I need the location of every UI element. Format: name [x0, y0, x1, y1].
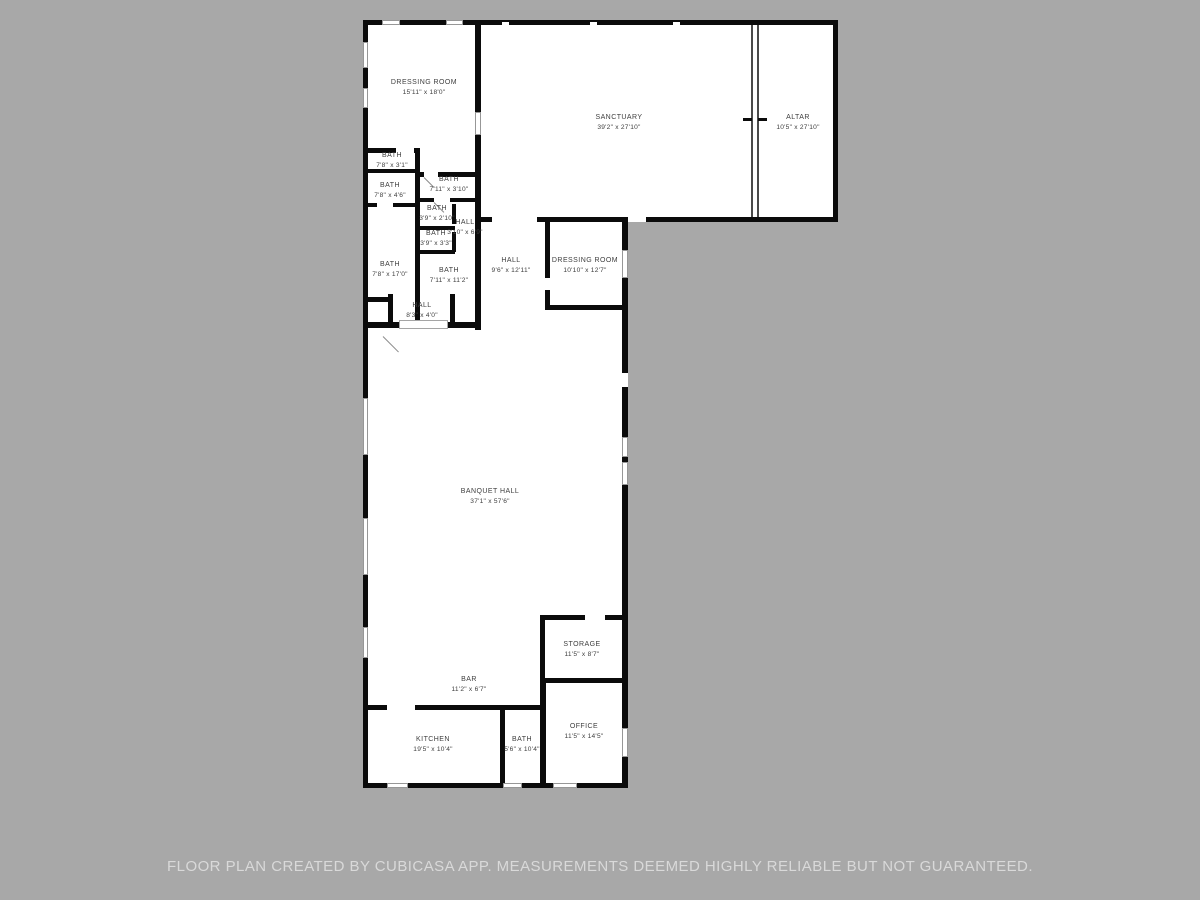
door-mark-sanctuary-1	[502, 22, 509, 25]
footer-attribution-text: FLOOR PLAN CREATED BY CUBICASA APP. MEAS…	[0, 858, 1200, 875]
altar-partition-line-2	[757, 25, 759, 217]
room-label-bath-5: BATH 3'9" x 3'3"	[420, 229, 452, 249]
door-opening-bath2	[377, 203, 393, 207]
wall-bath5-bottom	[420, 250, 455, 254]
room-label-bath-6: BATH 7'8" x 17'0"	[372, 260, 408, 280]
room-name: STORAGE	[563, 640, 600, 650]
room-dimensions: 10'5" x 27'10"	[776, 123, 819, 133]
room-label-bath-2: BATH 7'8" x 4'6"	[374, 181, 406, 201]
room-dimensions: 39'2" x 27'10"	[595, 123, 642, 133]
room-name: HALL	[406, 301, 438, 311]
wall-storage-bottom	[540, 678, 628, 683]
altar-partition-tick-left	[743, 118, 752, 121]
window-left-2	[363, 88, 368, 108]
room-label-bar: BAR 11'2" x 6'7"	[451, 675, 486, 695]
wall-exterior-right-altar	[833, 20, 838, 222]
wall-exterior-right-lower	[622, 217, 628, 788]
room-label-bath-1: BATH 7'8" x 3'1"	[376, 151, 408, 171]
room-name: BATH	[419, 204, 455, 214]
room-name: BATH	[430, 175, 469, 185]
wall-exterior-top	[363, 20, 838, 25]
room-label-hall-3: HALL 9'6" x 12'11"	[492, 256, 531, 276]
room-name: BAR	[451, 675, 486, 685]
window-banquet-right-2	[622, 462, 628, 485]
room-dimensions: 19'5" x 10'4"	[413, 745, 452, 755]
wall-dressing2-top	[537, 217, 628, 222]
wall-bathblock-bottom-left	[363, 322, 400, 328]
wall-storage-top-right	[605, 615, 628, 620]
wall-kitchen-top-right	[415, 705, 540, 710]
floorplan-canvas: DRESSING ROOM 15'11" x 18'0" SANCTUARY 3…	[0, 0, 1200, 900]
door-mark-sanctuary-2	[590, 22, 597, 25]
room-dimensions: 5'6" x 10'4"	[504, 745, 540, 755]
window-left-5	[363, 627, 368, 658]
room-dimensions: 11'5" x 8'7"	[563, 650, 600, 660]
wall-sanctuary-bottom	[646, 217, 838, 222]
wall-storage-left	[540, 615, 545, 683]
door-opening-bath3-bottom	[434, 198, 450, 202]
room-label-office: OFFICE 11'5" x 14'5"	[565, 722, 604, 742]
wall-dressing2-bottom	[545, 305, 628, 310]
room-label-hall-1: HALL 3'10" x 6'9"	[447, 218, 483, 238]
room-dimensions: 9'6" x 12'11"	[492, 266, 531, 276]
room-label-bath-7: BATH 7'11" x 11'2"	[430, 266, 468, 286]
window-bottom-3	[553, 783, 577, 788]
room-name: OFFICE	[565, 722, 604, 732]
room-dimensions: 7'11" x 11'2"	[430, 276, 468, 286]
altar-partition-line-1	[751, 25, 753, 217]
room-dimensions: 15'11" x 18'0"	[391, 88, 457, 98]
room-label-altar: ALTAR 10'5" x 27'10"	[776, 113, 819, 133]
room-name: HALL	[447, 218, 483, 228]
window-bathblock-right	[475, 112, 481, 135]
door-opening-banquet-right	[622, 373, 628, 387]
altar-partition-tick-right	[758, 118, 767, 121]
window-banquet-right-1	[622, 437, 628, 457]
door-mark-sanctuary-3	[673, 22, 680, 25]
window-bottom-2	[503, 783, 522, 788]
window-top-1	[382, 20, 400, 25]
room-name: BATH	[430, 266, 468, 276]
window-office-right	[622, 728, 628, 757]
room-label-kitchen: KITCHEN 19'5" x 10'4"	[413, 735, 452, 755]
room-label-banquet-hall: BANQUET HALL 37'1" x 57'6"	[461, 487, 520, 507]
room-dimensions: 11'2" x 6'7"	[451, 685, 486, 695]
room-name: KITCHEN	[413, 735, 452, 745]
room-name: BATH	[504, 735, 540, 745]
room-label-storage: STORAGE 11'5" x 8'7"	[563, 640, 600, 660]
room-dimensions: 7'8" x 4'6"	[374, 191, 406, 201]
room-name: ALTAR	[776, 113, 819, 123]
room-label-bath-3: BATH 7'11" x 3'10"	[430, 175, 469, 195]
door-bathblock-bottom	[399, 320, 448, 329]
wall-bathblock-bottom-right	[447, 322, 481, 328]
room-dimensions: 3'10" x 6'9"	[447, 228, 483, 238]
room-name: SANCTUARY	[595, 113, 642, 123]
room-label-sanctuary: SANCTUARY 39'2" x 27'10"	[595, 113, 642, 133]
wall-office-left	[540, 683, 546, 788]
room-dimensions: 37'1" x 57'6"	[461, 497, 520, 507]
room-name: DRESSING ROOM	[552, 256, 618, 266]
room-dimensions: 7'8" x 17'0"	[372, 270, 408, 280]
room-dimensions: 3'9" x 3'3"	[420, 239, 452, 249]
room-label-bath-8: BATH 5'6" x 10'4"	[504, 735, 540, 755]
room-name: BATH	[420, 229, 452, 239]
room-dimensions: 7'11" x 3'10"	[430, 185, 469, 195]
room-dimensions: 10'10" x 12'7"	[552, 266, 618, 276]
window-left-4	[363, 518, 368, 575]
room-label-hall-2: HALL 8'3" x 4'0"	[406, 301, 438, 321]
window-left-1	[363, 42, 368, 68]
room-label-dressing-room-2: DRESSING ROOM 10'10" x 12'7"	[552, 256, 618, 276]
window-dressing2-right	[622, 250, 628, 278]
room-dimensions: 8'3" x 4'0"	[406, 311, 438, 321]
wall-bath3-bottom	[420, 198, 481, 202]
wall-storage-top-left	[540, 615, 585, 620]
floorplan-page: { "colors": { "page_background": "#a8a8a…	[0, 0, 1200, 900]
room-label-dressing-room-1: DRESSING ROOM 15'11" x 18'0"	[391, 78, 457, 98]
room-dimensions: 11'5" x 14'5"	[565, 732, 604, 742]
wall-hall2-stub	[363, 297, 391, 302]
room-name: DRESSING ROOM	[391, 78, 457, 88]
room-name: HALL	[492, 256, 531, 266]
window-bottom-1	[387, 783, 408, 788]
wall-dressing2-left-upper	[545, 222, 550, 278]
room-dimensions: 7'8" x 3'1"	[376, 161, 408, 171]
wall-kitchen-top-left	[363, 705, 387, 710]
window-left-3	[363, 398, 368, 455]
window-top-2	[446, 20, 463, 25]
room-name: BATH	[376, 151, 408, 161]
room-name: BANQUET HALL	[461, 487, 520, 497]
room-name: BATH	[372, 260, 408, 270]
room-name: BATH	[374, 181, 406, 191]
